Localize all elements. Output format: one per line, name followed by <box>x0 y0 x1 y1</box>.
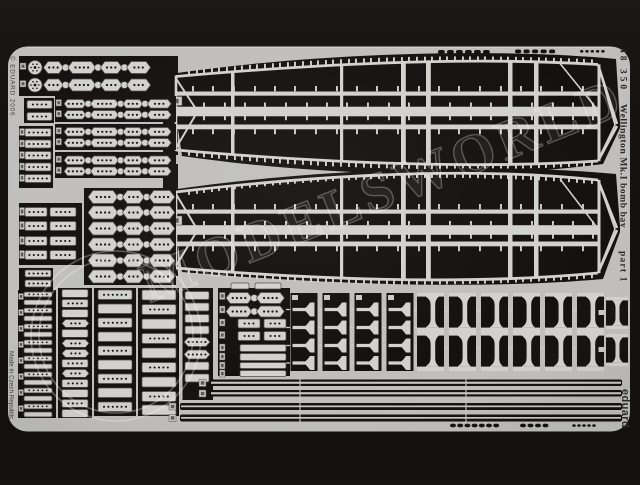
svg-text:© EDUARD 2006: © EDUARD 2006 <box>9 56 17 116</box>
svg-text:Made in Czech Republic: Made in Czech Republic <box>8 351 15 419</box>
svg-text:eduard: eduard <box>619 389 631 428</box>
